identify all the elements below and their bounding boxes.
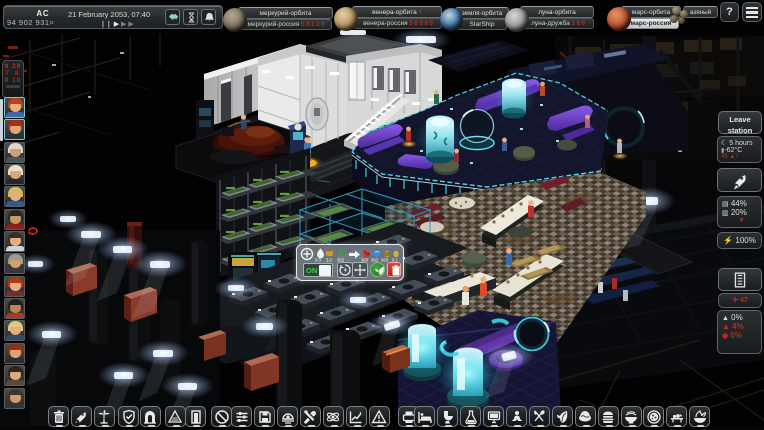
svg-text:0.0: 0.0	[315, 258, 321, 263]
svg-text:3.0: 3.0	[326, 258, 332, 263]
